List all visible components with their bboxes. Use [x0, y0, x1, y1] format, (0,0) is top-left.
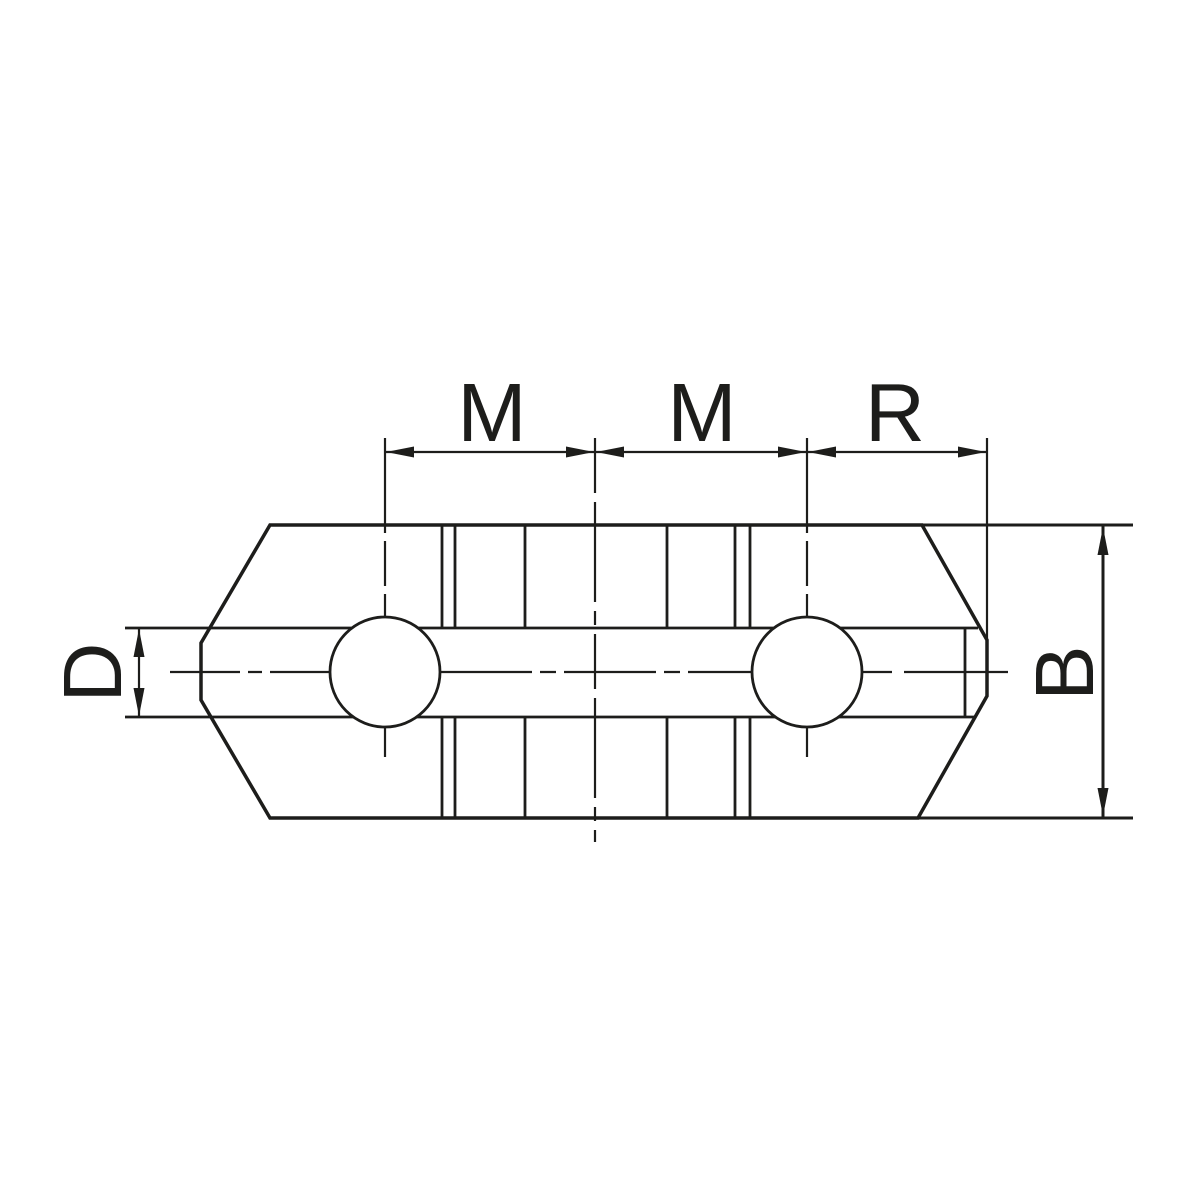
dimension-label-d: D — [46, 643, 139, 703]
arrowhead-down-icon — [1098, 788, 1109, 816]
arrowhead-left-icon — [386, 447, 414, 458]
drawing-canvas: M M R D B — [0, 0, 1200, 1200]
dimension-label-b: B — [1018, 645, 1111, 700]
arrowhead-left-icon — [596, 447, 624, 458]
arrowhead-up-icon — [1098, 527, 1109, 555]
dimension-d: D — [46, 628, 145, 717]
arrowhead-right-icon — [958, 447, 986, 458]
dimension-m1: M M R — [385, 366, 987, 641]
centerlines — [170, 438, 1008, 842]
technical-drawing: M M R D B — [0, 0, 1200, 1200]
left-hole — [330, 617, 440, 727]
dimension-label-m2: M — [667, 366, 736, 459]
arrowhead-left-icon — [808, 447, 836, 458]
dimension-label-r: R — [865, 366, 925, 459]
right-hole — [752, 617, 862, 727]
arrowhead-right-icon — [566, 447, 594, 458]
arrowhead-right-icon — [778, 447, 806, 458]
dimension-label-m1: M — [457, 366, 526, 459]
